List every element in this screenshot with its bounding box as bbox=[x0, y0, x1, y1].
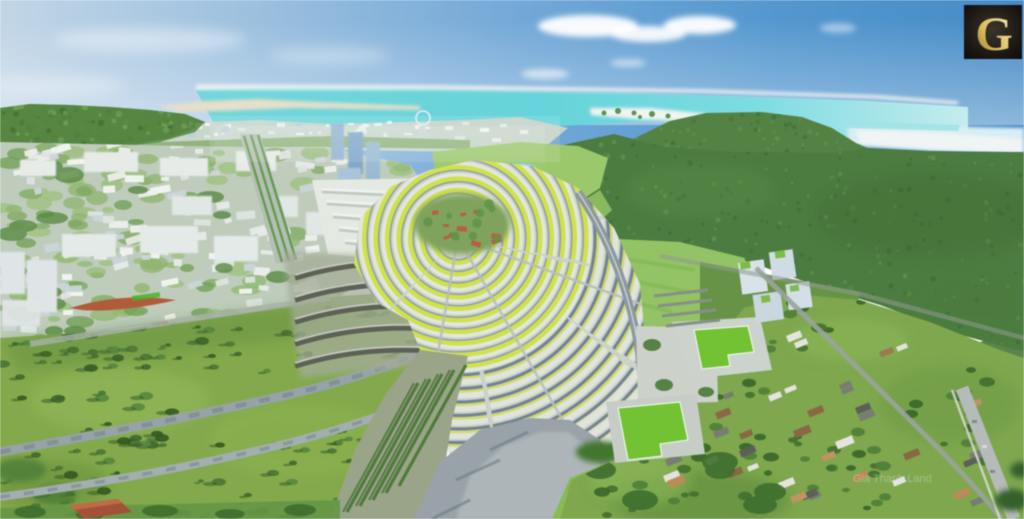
svg-text:Gia Thanh Land: Gia Thanh Land bbox=[853, 473, 932, 485]
svg-text:G: G bbox=[975, 8, 1012, 61]
